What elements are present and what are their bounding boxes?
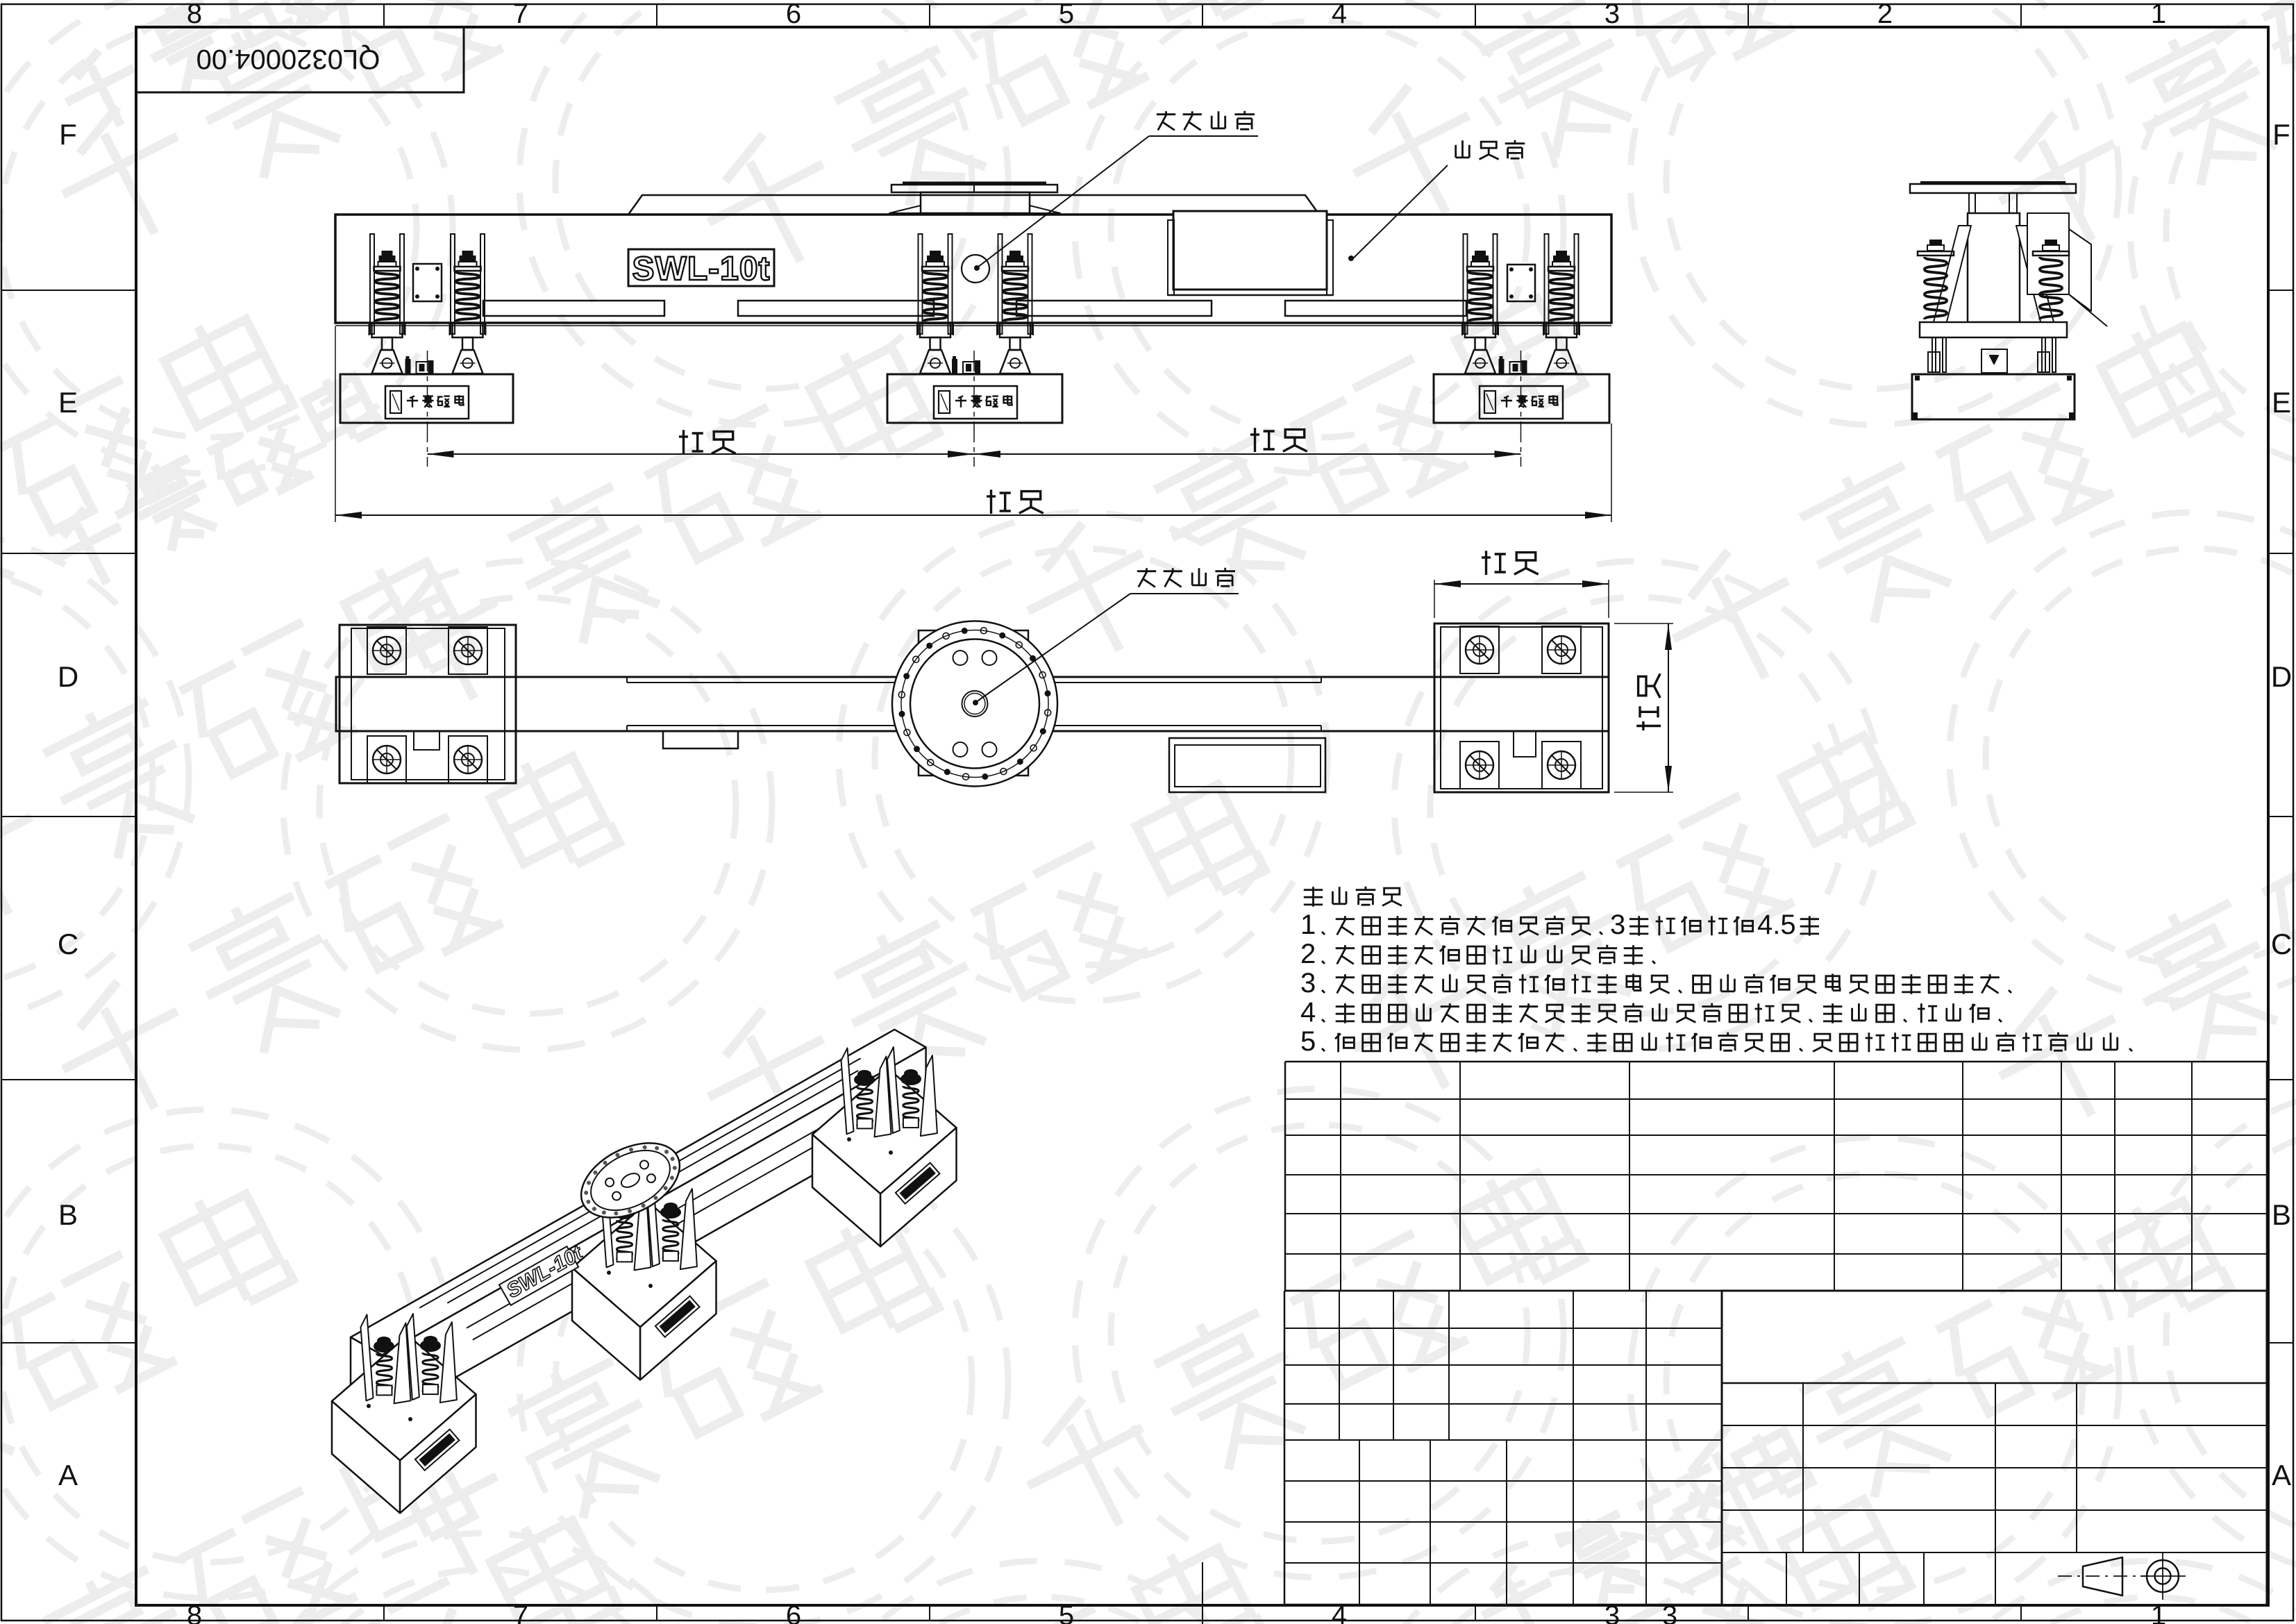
svg-text:1: 1 (2151, 1600, 2166, 1624)
svg-text:3: 3 (1300, 968, 1316, 998)
svg-text:B: B (58, 1198, 78, 1231)
svg-text:2: 2 (1877, 0, 1893, 29)
svg-text:F: F (59, 118, 77, 151)
svg-text:A: A (58, 1459, 78, 1491)
svg-text:6: 6 (786, 1600, 801, 1624)
svg-text:QL0320004.00: QL0320004.00 (196, 44, 380, 74)
svg-text:5: 5 (1059, 0, 1074, 29)
svg-text:3: 3 (1610, 910, 1625, 940)
svg-text:7: 7 (513, 1600, 528, 1624)
svg-text:3: 3 (1604, 0, 1620, 29)
svg-text:E: E (58, 386, 78, 419)
svg-text:D: D (58, 660, 78, 693)
svg-text:2: 2 (1300, 939, 1316, 969)
svg-text:8: 8 (187, 0, 202, 29)
svg-text:4.5: 4.5 (1757, 910, 1796, 940)
svg-text:4: 4 (1300, 997, 1316, 1028)
svg-text:7: 7 (513, 0, 528, 29)
svg-text:C: C (2271, 928, 2292, 960)
svg-text:F: F (2272, 118, 2290, 151)
svg-text:5: 5 (1059, 1600, 1074, 1624)
svg-text:8: 8 (187, 1600, 202, 1624)
svg-text:1: 1 (1300, 910, 1316, 940)
svg-text:C: C (58, 928, 78, 960)
svg-text:4: 4 (1332, 0, 1347, 29)
svg-text:E: E (2272, 386, 2291, 419)
svg-text:5: 5 (1300, 1026, 1316, 1057)
svg-text:SWL-10t: SWL-10t (632, 251, 771, 287)
svg-text:A: A (2272, 1459, 2291, 1491)
svg-text:B: B (2272, 1198, 2291, 1231)
svg-text:6: 6 (786, 0, 801, 29)
svg-text:D: D (2271, 660, 2292, 693)
svg-text:1: 1 (2151, 0, 2166, 29)
